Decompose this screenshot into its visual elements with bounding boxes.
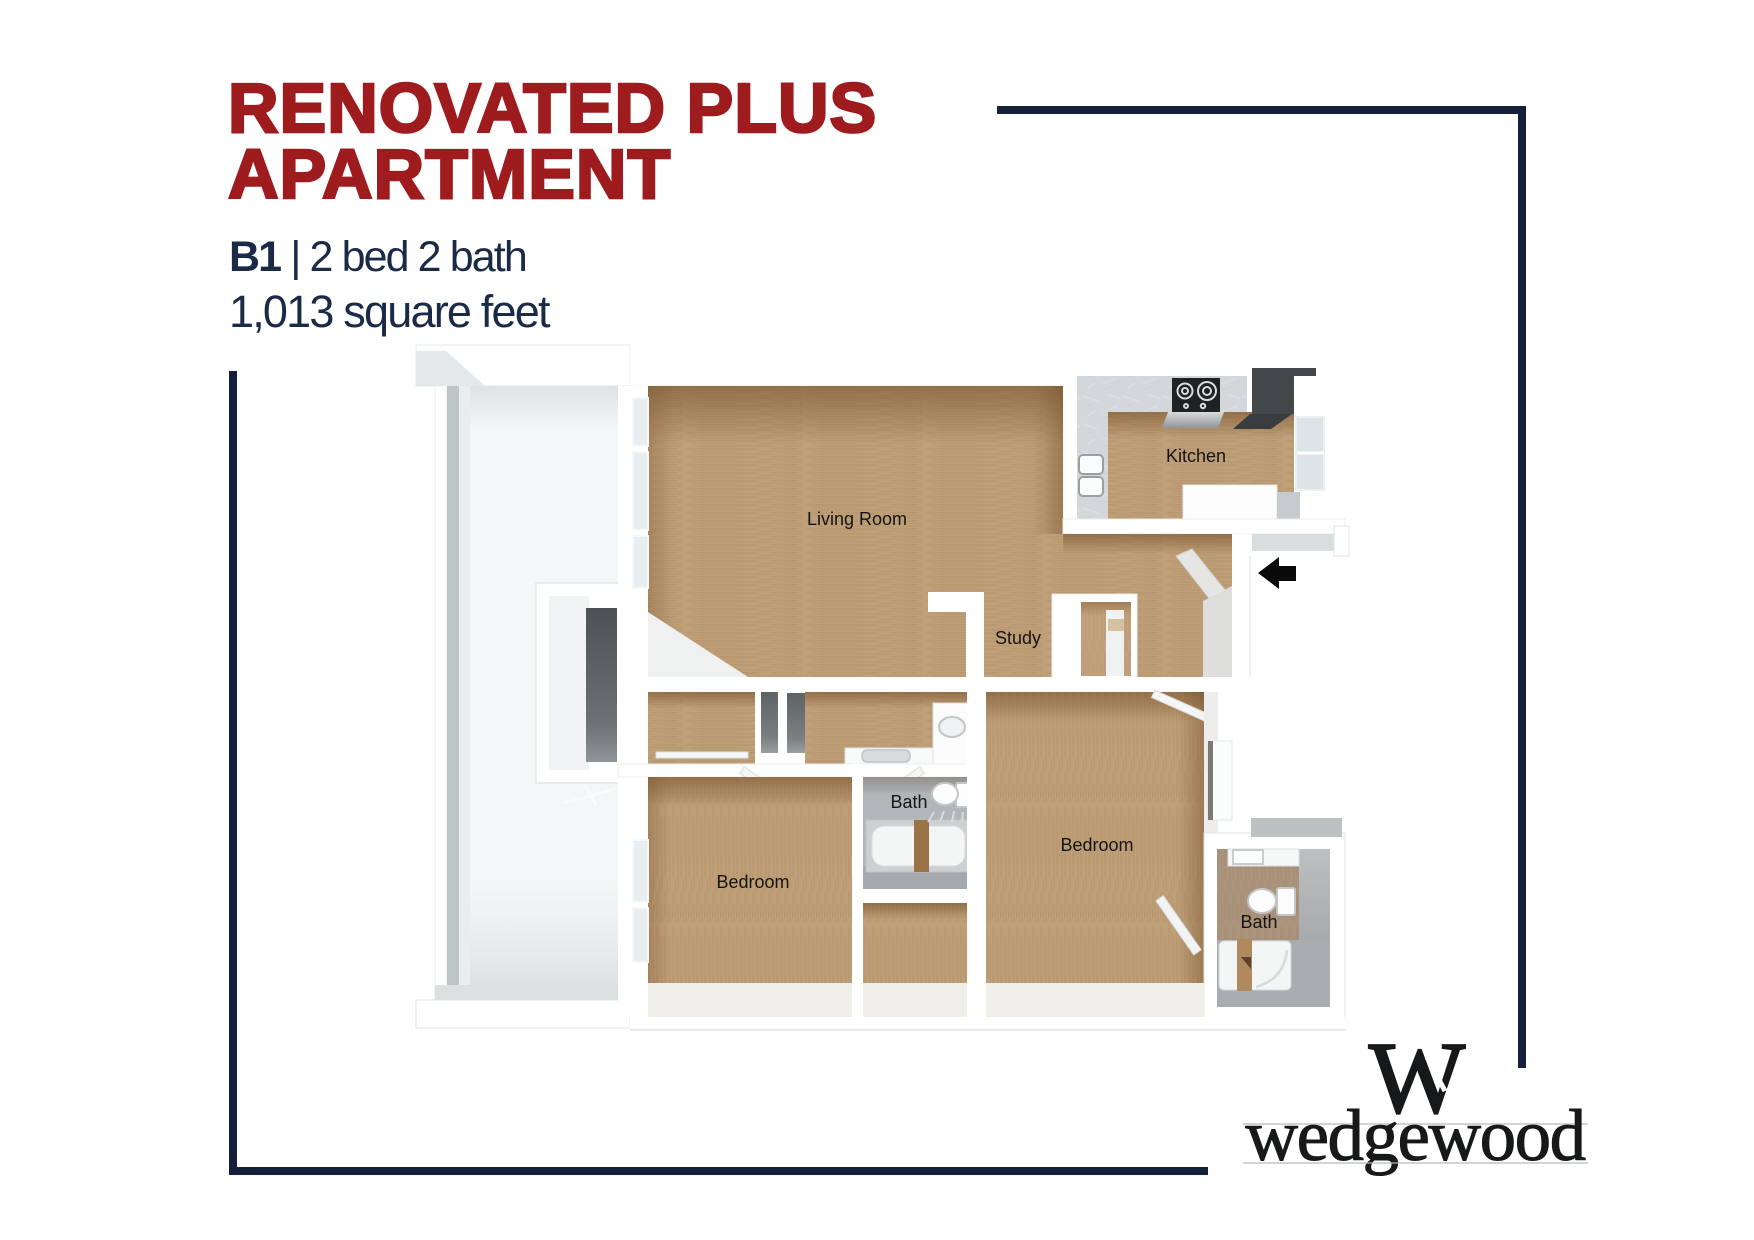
svg-text:Bath: Bath	[1240, 912, 1277, 932]
svg-text:Bath: Bath	[890, 792, 927, 812]
svg-text:APARTMENT: APARTMENT	[228, 135, 671, 213]
svg-text:Study: Study	[995, 628, 1041, 648]
svg-text:B1 | 2 bed 2 bath: B1 | 2 bed 2 bath	[229, 233, 526, 281]
svg-text:Bedroom: Bedroom	[716, 872, 789, 892]
svg-text:Living Room: Living Room	[807, 509, 907, 529]
svg-text:1,013 square feet: 1,013 square feet	[229, 286, 551, 337]
svg-text:Bedroom: Bedroom	[1060, 835, 1133, 855]
svg-text:wedgewood: wedgewood	[1245, 1095, 1585, 1176]
svg-text:Kitchen: Kitchen	[1166, 446, 1226, 466]
